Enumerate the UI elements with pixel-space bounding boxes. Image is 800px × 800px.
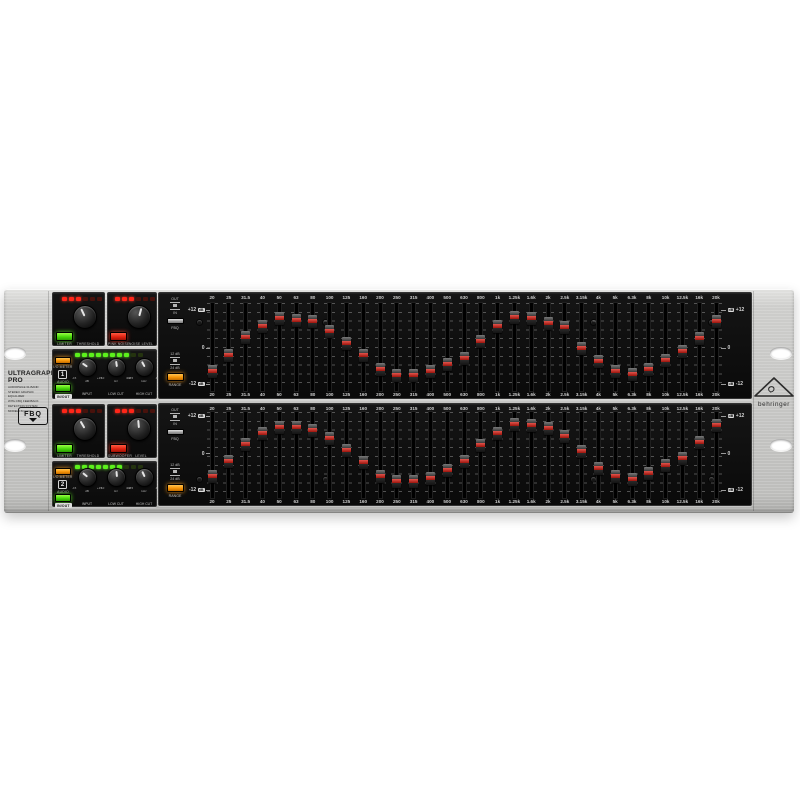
freq-label-bottom: 160 [359, 392, 367, 397]
range-24db-label: 24 dB [170, 366, 179, 370]
slider-track[interactable] [379, 303, 382, 391]
freq-label-bottom: 1.6k [527, 392, 536, 397]
knob-unit-label: dB [72, 489, 102, 493]
eq-band-2k: 2k2k [543, 404, 554, 505]
knob-pointer [70, 302, 99, 331]
slider-track[interactable] [647, 303, 650, 391]
ch1-range-button[interactable] [167, 373, 184, 381]
product-desc-1: AUDIOPHILE 31-BAND [8, 386, 50, 390]
fader-cap-31.5[interactable] [241, 438, 250, 451]
slider-track[interactable] [429, 303, 432, 391]
freq-label-top: 6.3k [628, 406, 637, 411]
fader-cap-4k[interactable] [594, 355, 603, 368]
eq-band-315: 315315 [408, 404, 419, 505]
freq-label-bottom: 1.25k [509, 499, 521, 504]
freq-label-bottom: 1k [495, 392, 500, 397]
db-badge: dB [198, 488, 205, 493]
knob-unit-label: kHz [129, 489, 159, 493]
freq-label-bottom: 25 [226, 499, 231, 504]
range-label: RANGE [169, 494, 182, 498]
freq-label-bottom: 4k [596, 499, 601, 504]
fader-cap-20k[interactable] [712, 419, 721, 432]
ch2-number-box: 2 [58, 480, 67, 489]
ch1-limiter-section: LIMITER THRESHOLD [52, 292, 105, 346]
fader-cap-1.25k[interactable] [510, 418, 519, 431]
panel-screw [197, 477, 202, 482]
ch1-high-cut-knob[interactable] [135, 358, 154, 377]
ch1-high-cut-knob-group: 2.5 40 kHz HIGH CUT [129, 353, 159, 399]
fader-cap-40[interactable] [258, 320, 267, 333]
fader-cap-1k[interactable] [493, 320, 502, 333]
fader-cap-100[interactable] [325, 325, 334, 338]
freq-label-top: 250 [393, 406, 401, 411]
freq-label-top: 20k [712, 295, 720, 300]
slider-track[interactable] [244, 303, 247, 391]
slider-track[interactable] [647, 412, 650, 498]
slider-track[interactable] [362, 303, 365, 391]
slider-track[interactable] [261, 412, 264, 498]
eq-band-20: 2020 [207, 404, 218, 505]
slider-track[interactable] [496, 303, 499, 391]
product-desc-2: STEREO GRAPHIC EQUALIZER [8, 391, 50, 398]
freq-label-top: 400 [427, 295, 435, 300]
freq-label-top: 25 [226, 406, 231, 411]
freq-label-bottom: 40 [260, 392, 265, 397]
scale-zero-right: 0 [721, 451, 757, 457]
ch2-input-knob[interactable] [78, 468, 97, 487]
knob-unit-label: Hz [101, 379, 131, 383]
db-badge: dB [198, 382, 205, 387]
freq-label-bottom: 20 [209, 499, 214, 504]
freq-label-top: 40 [260, 295, 265, 300]
range-12db-label: 12 dB [170, 463, 179, 467]
fader-cap-1.6k[interactable] [527, 419, 536, 432]
range-12db-label: 12 dB [170, 352, 179, 356]
freq-label-bottom: 12.5k [677, 499, 689, 504]
freq-label-bottom: 20 [209, 392, 214, 397]
eq-band-125: 125125 [341, 293, 352, 398]
scale-tick [721, 384, 726, 385]
fader-cap-12.5k[interactable] [678, 345, 687, 358]
slider-track[interactable] [211, 303, 214, 391]
knob-pointer [75, 356, 99, 380]
red-led [62, 409, 67, 413]
range-switch-icon [170, 468, 180, 476]
eq-band-4k: 4k4k [593, 404, 604, 505]
fader-cap-20[interactable] [208, 365, 217, 378]
fader-cap-630[interactable] [460, 352, 469, 365]
fbq-logo-text: FBQ [24, 411, 42, 418]
fbq-logo: FBQ [18, 407, 48, 425]
slider-track[interactable] [496, 412, 499, 498]
ch1-threshold-label: THRESHOLD [74, 343, 102, 347]
eq-band-1.25k: 1.25k1.25k [509, 293, 520, 398]
freq-label-bottom: 315 [410, 392, 418, 397]
slider-track[interactable] [429, 412, 432, 498]
fader-cap-250[interactable] [392, 369, 401, 382]
freq-label-bottom: 12.5k [677, 392, 689, 397]
freq-label-bottom: 800 [477, 392, 485, 397]
fader-cap-50[interactable] [275, 421, 284, 434]
freq-label-top: 20k [712, 406, 720, 411]
freq-label-bottom: 630 [460, 499, 468, 504]
eq-band-400: 400400 [425, 293, 436, 398]
scale-plus12-right: dB+12 [721, 413, 757, 419]
eq-band-800: 800800 [475, 404, 486, 505]
freq-label-bottom: 6.3k [628, 392, 637, 397]
eq-band-5k: 5k5k [610, 293, 621, 398]
fader-cap-2k[interactable] [544, 317, 553, 330]
freq-label-top: 40 [260, 406, 265, 411]
slider-track[interactable] [446, 412, 449, 498]
ch2-io-section: I/O METER 2 AUDIO IN/OUT -15 +15 dB INPU… [52, 461, 157, 507]
fader-cap-8k[interactable] [644, 467, 653, 480]
freq-label-top: 4k [596, 406, 601, 411]
ch1-noise-level-knob[interactable] [127, 305, 151, 329]
freq-label-top: 100 [326, 406, 334, 411]
fader-cap-160[interactable] [359, 456, 368, 469]
eq-band-630: 630630 [459, 404, 470, 505]
red-led [90, 409, 95, 413]
ch2-io-meter-button[interactable] [55, 468, 71, 475]
fader-cap-800[interactable] [476, 335, 485, 348]
ch2-limiter-led-meter [62, 409, 102, 413]
slider-track[interactable] [698, 303, 701, 391]
fader-cap-250[interactable] [392, 475, 401, 488]
fader-cap-125[interactable] [342, 337, 351, 350]
freq-label-top: 500 [443, 295, 451, 300]
slider-track[interactable] [446, 303, 449, 391]
red-led [129, 409, 134, 413]
freq-label-bottom: 10k [662, 499, 670, 504]
fader-cap-315[interactable] [409, 369, 418, 382]
eq-band-16k: 16k16k [694, 293, 705, 398]
eq-band-10k: 10k10k [660, 293, 671, 398]
fader-cap-3.15k[interactable] [577, 445, 586, 458]
eq-band-630: 630630 [459, 293, 470, 398]
ch1-io-meter-button[interactable] [55, 357, 71, 364]
ch1-eq-in-out-button[interactable] [167, 318, 184, 324]
slider-track[interactable] [597, 412, 600, 498]
fader-cap-125[interactable] [342, 444, 351, 457]
freq-label-top: 63 [293, 295, 298, 300]
freq-label-bottom: 16k [695, 499, 703, 504]
freq-label-top: 12.5k [677, 295, 689, 300]
fader-cap-2.5k[interactable] [560, 430, 569, 443]
freq-label-top: 1.6k [527, 406, 536, 411]
panel-screw [197, 320, 202, 325]
fader-cap-1.25k[interactable] [510, 311, 519, 324]
freq-label-top: 100 [326, 295, 334, 300]
eq-band-200: 200200 [375, 404, 386, 505]
ch2-threshold-knob[interactable] [73, 417, 97, 441]
knob-pointer [70, 414, 100, 444]
fader-cap-800[interactable] [476, 439, 485, 452]
fader-cap-315[interactable] [409, 475, 418, 488]
fbq-mode-label: FBQ [171, 437, 178, 441]
fader-cap-20[interactable] [208, 470, 217, 483]
ch1-low-cut-knob[interactable] [107, 358, 126, 377]
freq-label-bottom: 100 [326, 392, 334, 397]
slider-track[interactable] [563, 303, 566, 391]
slider-track[interactable] [227, 303, 230, 391]
fader-cap-6.3k[interactable] [628, 473, 637, 486]
fader-cap-200[interactable] [376, 363, 385, 376]
eq-band-63: 6363 [291, 404, 302, 505]
knob-pointer [133, 356, 156, 379]
red-led [76, 409, 81, 413]
freq-label-top: 1.25k [509, 295, 521, 300]
scale-tick [721, 416, 726, 417]
freq-label-top: 12.5k [677, 406, 689, 411]
red-led [97, 409, 102, 413]
eq-band-10k: 10k10k [660, 404, 671, 505]
freq-label-top: 125 [343, 406, 351, 411]
fader-cap-80[interactable] [308, 424, 317, 437]
fader-cap-2k[interactable] [544, 422, 553, 435]
freq-label-top: 250 [393, 295, 401, 300]
product-desc-3: WITH FBQ FEEDBACK [8, 400, 50, 404]
freq-label-top: 2.5k [560, 295, 569, 300]
slider-track[interactable] [664, 303, 667, 391]
freq-label-bottom: 3.15k [576, 392, 588, 397]
freq-label-bottom: 8k [646, 499, 651, 504]
knob-pointer [75, 466, 99, 490]
slider-track[interactable] [479, 412, 482, 498]
freq-label-bottom: 250 [393, 499, 401, 504]
fader-cap-8k[interactable] [644, 363, 653, 376]
freq-label-top: 25 [226, 295, 231, 300]
freq-label-top: 8k [646, 406, 651, 411]
freq-label-top: 2k [545, 406, 550, 411]
eq-band-500: 500500 [442, 293, 453, 398]
freq-label-bottom: 400 [427, 499, 435, 504]
fader-cap-4k[interactable] [594, 462, 603, 475]
ch2-eq-panel: OUT IN FBQ 12 dB 24 dB RANGE +12dB 0 -12… [158, 403, 752, 506]
fader-cap-160[interactable] [359, 349, 368, 362]
eq-band-2k: 2k2k [543, 293, 554, 398]
fader-cap-10k[interactable] [661, 459, 670, 472]
slider-track[interactable] [261, 303, 264, 391]
fader-cap-400[interactable] [426, 472, 435, 485]
freq-label-bottom: 500 [443, 392, 451, 397]
freq-label-top: 200 [376, 406, 384, 411]
freq-label-top: 500 [443, 406, 451, 411]
freq-label-top: 50 [277, 295, 282, 300]
eq-band-500: 500500 [442, 404, 453, 505]
ch2-eq-in-out-button[interactable] [167, 429, 184, 435]
slider-track[interactable] [328, 303, 331, 391]
knob-pointer [106, 358, 125, 377]
eq-band-125: 125125 [341, 404, 352, 505]
fader-cap-630[interactable] [460, 455, 469, 468]
freq-label-bottom: 630 [460, 392, 468, 397]
red-led [150, 297, 155, 301]
eq-band-250: 250250 [391, 293, 402, 398]
fader-cap-100[interactable] [325, 432, 334, 445]
eq-band-200: 200200 [375, 293, 386, 398]
slider-track[interactable] [463, 303, 466, 391]
freq-label-bottom: 2k [545, 499, 550, 504]
knob-pointer [126, 304, 153, 331]
ch2-high-cut-knob-group: 2.5 40 kHz HIGH CUT [129, 463, 159, 509]
fader-cap-40[interactable] [258, 427, 267, 440]
eq-band-80: 8080 [307, 293, 318, 398]
freq-label-bottom: 4k [596, 392, 601, 397]
slider-track[interactable] [211, 412, 214, 498]
fbq-mode-label: FBQ [171, 326, 178, 330]
freq-label-top: 315 [410, 295, 418, 300]
ch1-audio-in-out-button[interactable] [55, 384, 71, 392]
fader-cap-31.5[interactable] [241, 331, 250, 344]
fader-cap-6.3k[interactable] [628, 368, 637, 381]
eq-band-20k: 20k20k [711, 404, 722, 505]
fader-cap-20k[interactable] [712, 315, 721, 328]
out-label: OUT [171, 408, 179, 412]
slider-track[interactable] [379, 412, 382, 498]
ch1-io-section: I/O METER 1 AUDIO IN/OUT -15 +15 dB INPU… [52, 349, 157, 399]
freq-label-top: 3.15k [576, 295, 588, 300]
fader-cap-25[interactable] [224, 455, 233, 468]
ch2-low-cut-knob[interactable] [107, 468, 126, 487]
ch2-limiter-section: LIMITER THRESHOLD [52, 404, 105, 458]
eq-band-1.6k: 1.6k1.6k [526, 404, 537, 505]
eq-band-4k: 4k4k [593, 293, 604, 398]
ch2-level-knob[interactable] [127, 417, 151, 441]
ch1-input-knob[interactable] [78, 358, 97, 377]
eq-band-31.5: 31.531.5 [240, 404, 251, 505]
fader-cap-5k[interactable] [611, 365, 620, 378]
rack-screw-slot [770, 439, 792, 451]
slider-track[interactable] [597, 303, 600, 391]
slider-track[interactable] [614, 412, 617, 498]
fader-cap-80[interactable] [308, 315, 317, 328]
fader-cap-63[interactable] [292, 314, 301, 327]
red-led [136, 297, 141, 301]
fader-cap-16k[interactable] [695, 332, 704, 345]
freq-label-top: 80 [310, 406, 315, 411]
eq-band-800: 800800 [475, 293, 486, 398]
fader-cap-12.5k[interactable] [678, 452, 687, 465]
freq-label-bottom: 500 [443, 499, 451, 504]
eq-band-160: 160160 [358, 293, 369, 398]
ch1-limiter-button[interactable] [56, 332, 73, 341]
freq-label-top: 80 [310, 295, 315, 300]
ch2-audio-in-out-button[interactable] [55, 494, 71, 502]
freq-label-bottom: 16k [695, 392, 703, 397]
red-led [83, 297, 88, 301]
db-badge: dB [728, 414, 735, 419]
freq-label-top: 8k [646, 295, 651, 300]
freq-label-top: 5k [613, 295, 618, 300]
freq-label-bottom: 31.5 [241, 499, 250, 504]
eq-band-1.6k: 1.6k1.6k [526, 293, 537, 398]
eq-band-31.5: 31.531.5 [240, 293, 251, 398]
knob-pointer [133, 466, 156, 489]
eq-band-1k: 1k1k [492, 404, 503, 505]
freq-label-top: 1k [495, 295, 500, 300]
slider-track[interactable] [362, 412, 365, 498]
fader-cap-50[interactable] [275, 312, 284, 325]
db-badge: dB [728, 488, 735, 493]
freq-label-top: 20 [209, 295, 214, 300]
freq-label-bottom: 31.5 [241, 392, 250, 397]
ch2-subwoofer-led-meter [115, 409, 155, 413]
freq-label-top: 1.6k [527, 295, 536, 300]
freq-label-top: 50 [277, 406, 282, 411]
db-badge: dB [728, 382, 735, 387]
ch2-subwoofer-section: SUBWOOFER LEVEL [107, 404, 157, 458]
slider-track[interactable] [614, 303, 617, 391]
red-led [62, 297, 67, 301]
ch2-threshold-label: THRESHOLD [74, 455, 102, 459]
scale-tick [721, 348, 726, 349]
freq-label-top: 160 [359, 406, 367, 411]
freq-label-bottom: 63 [293, 499, 298, 504]
ch2-limiter-button[interactable] [56, 444, 73, 453]
fader-cap-200[interactable] [376, 470, 385, 483]
freq-label-bottom: 25 [226, 392, 231, 397]
fader-cap-3.15k[interactable] [577, 342, 586, 355]
fader-cap-25[interactable] [224, 349, 233, 362]
ch1-io-meter-label: I/O METER [53, 366, 73, 370]
slider-track[interactable] [244, 412, 247, 498]
ch2-limiter-label: LIMITER [54, 455, 75, 459]
red-led [150, 409, 155, 413]
eq-band-25: 2525 [223, 404, 234, 505]
fader-cap-500[interactable] [443, 464, 452, 477]
freq-label-top: 1.25k [509, 406, 521, 411]
fader-cap-500[interactable] [443, 358, 452, 371]
fader-cap-63[interactable] [292, 421, 301, 434]
slider-track[interactable] [563, 412, 566, 498]
ch1-pink-noise-label: PINK NOISE [108, 343, 129, 347]
ch2-subwoofer-button[interactable] [110, 444, 127, 453]
fader-cap-5k[interactable] [611, 470, 620, 483]
slider-track[interactable] [328, 412, 331, 498]
freq-label-bottom: 125 [343, 392, 351, 397]
ch2-high-cut-knob[interactable] [135, 468, 154, 487]
freq-label-top: 2k [545, 295, 550, 300]
fader-cap-1.6k[interactable] [527, 312, 536, 325]
eq-band-63: 6363 [291, 293, 302, 398]
eq-band-1k: 1k1k [492, 293, 503, 398]
eq-band-2.5k: 2.5k2.5k [559, 293, 570, 398]
fader-cap-1k[interactable] [493, 427, 502, 440]
fader-cap-2.5k[interactable] [560, 321, 569, 334]
eq-band-25: 2525 [223, 293, 234, 398]
ch1-pink-noise-button[interactable] [110, 332, 127, 341]
fader-cap-10k[interactable] [661, 354, 670, 367]
ch1-threshold-knob[interactable] [73, 305, 97, 329]
fader-cap-400[interactable] [426, 365, 435, 378]
freq-label-top: 31.5 [241, 406, 250, 411]
in-label: IN [173, 422, 177, 426]
freq-label-bottom: 800 [477, 499, 485, 504]
eq-band-16k: 16k16k [694, 404, 705, 505]
freq-label-bottom: 5k [613, 499, 618, 504]
db-badge: dB [198, 308, 205, 313]
freq-label-top: 2.5k [560, 406, 569, 411]
slider-track[interactable] [698, 412, 701, 498]
freq-label-bottom: 1.25k [509, 392, 521, 397]
scale-tick [721, 490, 726, 491]
ch1-pink-noise-section: PINK NOISE NOISE LEVEL [107, 292, 157, 346]
slider-track[interactable] [664, 412, 667, 498]
behringer-triangle-icon: behringer [752, 375, 796, 415]
scale-plus12-right: dB+12 [721, 307, 757, 313]
fader-cap-16k[interactable] [695, 436, 704, 449]
